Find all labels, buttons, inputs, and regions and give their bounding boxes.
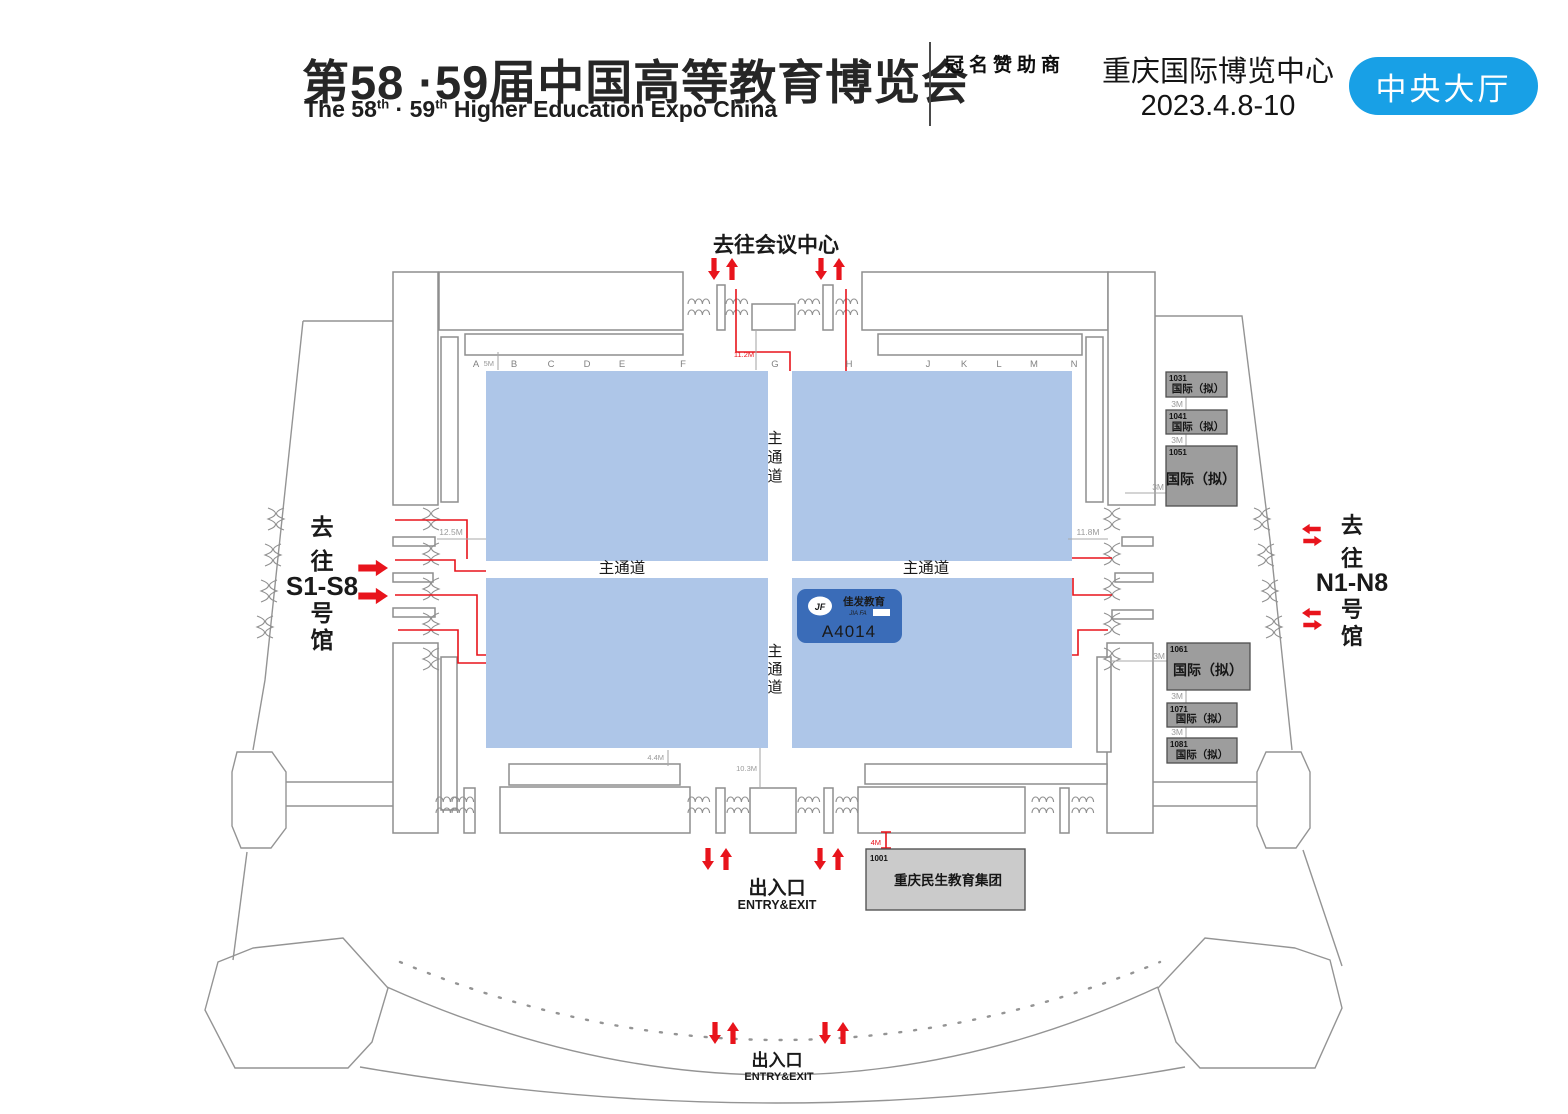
column-letter: L [996, 359, 1001, 370]
up-arrow-icon [832, 848, 844, 870]
to-s-halls-label: 号 [311, 600, 334, 626]
brand-en: JIA FA [848, 611, 866, 617]
escalator-icon [688, 299, 710, 315]
up-arrow-icon [727, 1022, 739, 1044]
booth-number: 1081 [1170, 740, 1188, 749]
escalator-icon [798, 299, 820, 315]
booth-number: 1001 [870, 854, 888, 863]
left-arrow-icon [1302, 524, 1321, 534]
up-arrow-icon [837, 1022, 849, 1044]
entry-exit-zh: 出入口 [748, 876, 805, 899]
dim-11-8m: 11.8M [1077, 527, 1100, 537]
left-plaza-octagon [205, 938, 388, 1068]
booth-1031: 1031 国际（拟） [1166, 372, 1227, 397]
door-icon [423, 508, 439, 530]
to-s-halls-label: S1-S8 [286, 571, 358, 601]
jiafa-logo-initials: JF [815, 602, 826, 612]
escalator-icon [836, 797, 858, 813]
dim-3m: 3M [1171, 691, 1183, 701]
dim-3m: 3M [1171, 727, 1183, 737]
intl-booths: 1031 国际（拟） 1041 国际（拟） 1051 国际（拟） 1061 国际… [1166, 372, 1250, 763]
to-n-halls-label: 去 [1341, 513, 1363, 538]
zone-top-left [486, 371, 768, 561]
column-letter: E [619, 359, 625, 370]
to-n-halls-label: 往 [1341, 546, 1363, 571]
dim-5m: 5M [484, 359, 494, 368]
to-n-halls-label: 馆 [1341, 624, 1363, 649]
right-arrow-icon [358, 560, 388, 576]
escalator-icon [798, 797, 820, 813]
booth-label: 国际（拟） [1173, 662, 1243, 678]
door-icon [1104, 508, 1120, 530]
up-arrow-icon [726, 258, 738, 280]
booth-1041: 1041 国际（拟） [1166, 410, 1227, 434]
down-arrow-icon [819, 1022, 831, 1044]
column-letter: A [473, 359, 480, 370]
main-aisle-label: 主通道 [599, 559, 646, 577]
booth-label: 国际（拟） [1172, 420, 1225, 433]
column-letter: F [680, 359, 686, 370]
escalator-icon [1032, 797, 1054, 813]
column-letter: K [961, 359, 968, 370]
booth-a4014: JF 佳发教育 JIA FA A4014 [797, 589, 902, 643]
right-arrow-icon [1303, 620, 1322, 630]
to-s-halls-label: 馆 [311, 627, 334, 653]
escalator-icon [1072, 797, 1094, 813]
escalator-icon [688, 797, 710, 813]
booth-1051: 1051 国际（拟） [1166, 446, 1237, 506]
zone-bottom-left [486, 578, 768, 748]
column-letter: G [771, 359, 778, 370]
column-letter: D [584, 359, 591, 370]
dim-4-4m: 4.4M [647, 753, 664, 762]
booth-label: 国际（拟） [1176, 748, 1229, 761]
dim-4m: 4M [871, 838, 881, 847]
down-arrow-icon [709, 1022, 721, 1044]
booth-1081: 1081 国际（拟） [1167, 738, 1237, 763]
main-aisle-label-v: 主 [767, 430, 782, 447]
booth-label: 国际（拟） [1176, 712, 1229, 725]
right-arrow-icon [1303, 536, 1322, 546]
booth-number: A4014 [822, 622, 876, 641]
entry-exit-en: ENTRY&EXIT [738, 898, 817, 912]
up-arrow-icon [720, 848, 732, 870]
right-tower-octagon [1257, 752, 1310, 848]
column-letter: J [926, 359, 931, 370]
escalator-icon [727, 797, 749, 813]
column-letter: C [548, 359, 555, 370]
booth-1071: 1071 国际（拟） [1167, 703, 1237, 727]
column-letter: N [1071, 359, 1078, 370]
to-n-halls-label: 号 [1341, 597, 1363, 622]
entry-exit-zh: 出入口 [752, 1050, 803, 1070]
to-n-halls-label: N1-N8 [1316, 569, 1388, 597]
booth-1001: 1001 重庆民生教育集团 [866, 849, 1025, 910]
column-letter: M [1030, 359, 1038, 370]
column-letters: A B C D E F G H J K L M N [473, 359, 1078, 370]
down-arrow-icon [708, 258, 720, 280]
main-aisle-label-v: 通 [767, 661, 782, 678]
right-plaza-octagon [1158, 938, 1342, 1068]
column-letter: H [846, 359, 853, 370]
left-tower-octagon [232, 752, 286, 848]
booth-number: 1061 [1170, 645, 1188, 654]
booth-number: 1051 [1169, 448, 1187, 457]
booth-number: 1041 [1169, 412, 1187, 421]
left-arrow-icon [1302, 608, 1321, 618]
column-letter: B [511, 359, 517, 370]
expo-floorplan-page: 第58 ·59届中国高等教育博览会 The 58th · 59th Higher… [0, 0, 1568, 1114]
dim-10-3m: 10.3M [736, 764, 757, 773]
to-conference-label: 去往会议中心 [713, 233, 839, 257]
zone-top-right [792, 371, 1072, 561]
main-aisle-label-v: 通 [767, 449, 782, 466]
main-aisle-label-v: 道 [767, 679, 782, 696]
dim-3m: 3M [1171, 399, 1183, 409]
booth-label: 国际（拟） [1166, 471, 1236, 487]
dim-3m: 3M [1152, 482, 1164, 492]
down-arrow-icon [815, 258, 827, 280]
dim-3m: 3M [1171, 435, 1183, 445]
booth-label: 国际（拟） [1172, 382, 1225, 395]
booth-1061: 1061 国际（拟） [1167, 643, 1250, 690]
down-arrow-icon [702, 848, 714, 870]
entry-exit-en: ENTRY&EXIT [744, 1071, 814, 1083]
dim-12-5m: 12.5M [439, 527, 463, 537]
dotted-walkway [400, 962, 1160, 1040]
main-aisle-label: 主通道 [903, 559, 950, 577]
right-arrow-icon [358, 588, 388, 604]
brand-wordmark-block [873, 609, 890, 616]
up-arrow-icon [833, 258, 845, 280]
dim-11-2m: 11.2M [734, 350, 754, 359]
door-icon [1104, 543, 1120, 565]
down-arrow-icon [814, 848, 826, 870]
booth-number: 1031 [1169, 374, 1187, 383]
floorplan-svg: 5M 11.2M 12.5M 11.8M 4.4M 10.3M 4M 3M 3M… [0, 0, 1568, 1114]
booth-label: 重庆民生教育集团 [894, 872, 1002, 888]
main-aisle-label-v: 主 [767, 643, 782, 660]
to-s-halls-label: 去 [311, 514, 334, 540]
dim-3m: 3M [1153, 651, 1165, 661]
brand-zh: 佳发教育 [843, 595, 885, 608]
main-aisle-label-v: 道 [767, 468, 782, 485]
